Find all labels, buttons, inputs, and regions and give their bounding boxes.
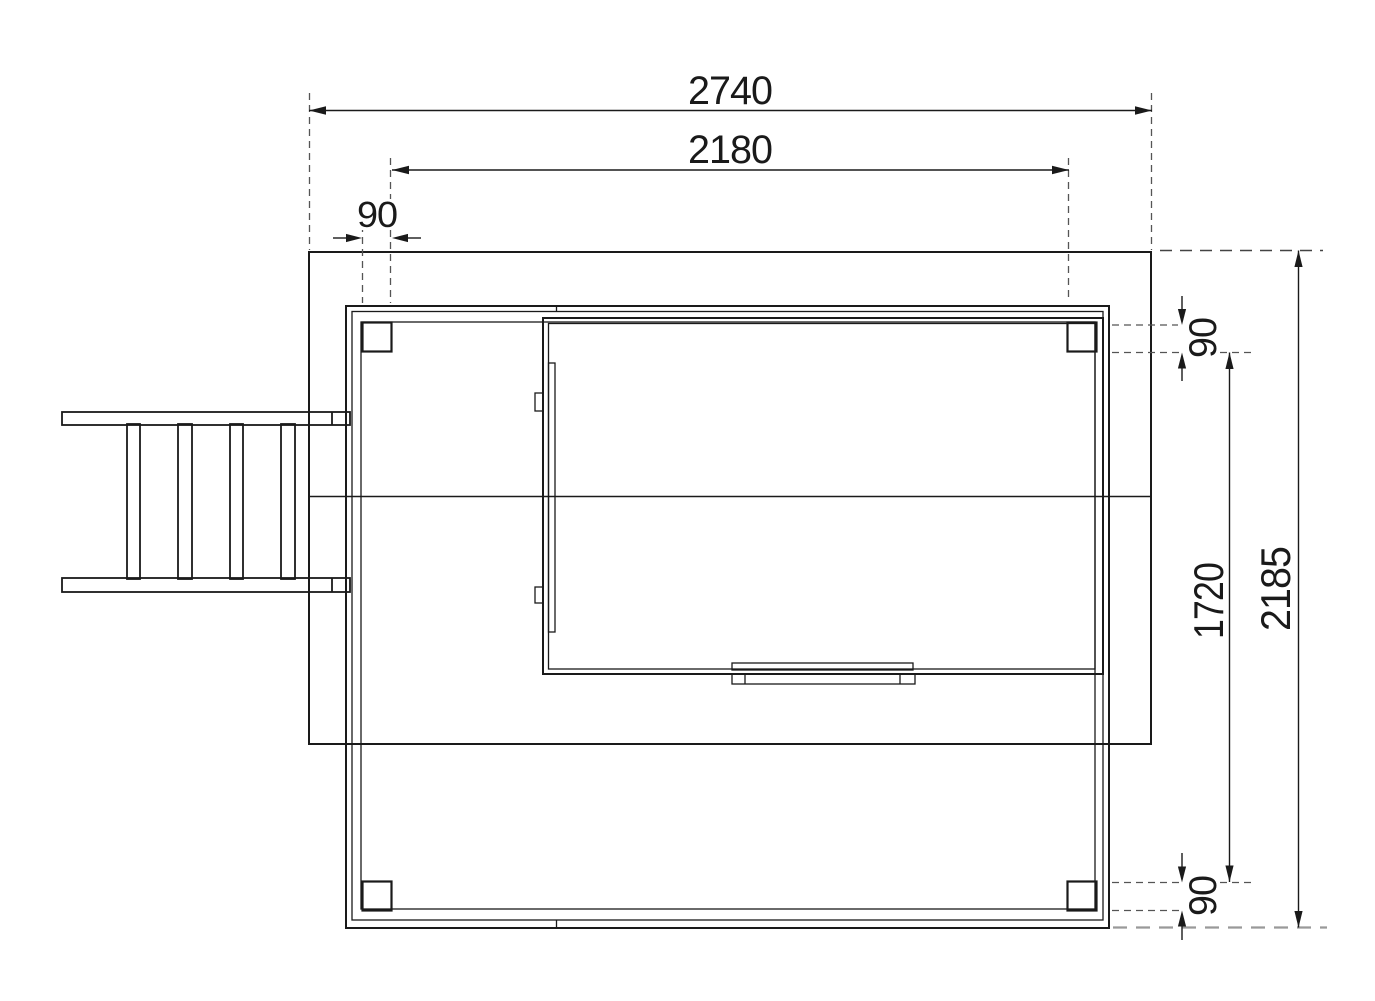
dim-label-post-depth-bottom: 90 [1182, 876, 1225, 916]
extension-lines [310, 93, 1328, 928]
corner-post-bottom-right [1068, 882, 1097, 911]
arrowhead-left-icon [309, 106, 326, 114]
ladder-rail-top [62, 412, 350, 425]
dimension-lines [309, 106, 1303, 940]
door-sill-outer [732, 674, 915, 684]
arrowhead-up-icon [1294, 251, 1302, 268]
dim-label-total-width: 2740 [688, 69, 772, 113]
dim-label-total-depth: 2185 [1252, 547, 1299, 631]
floor-plan-drawing: 2740 2180 90 90 1720 2185 90 [0, 0, 1375, 1001]
corner-post-top-left [363, 323, 392, 352]
arrowhead-left-icon [392, 166, 409, 174]
wall-inner-face [361, 322, 1095, 909]
corner-posts [363, 323, 1097, 911]
dim-label-post-width: 90 [357, 194, 397, 235]
corner-post-bottom-left [363, 882, 392, 911]
arrowhead-right-icon [1052, 166, 1069, 174]
outer-wall [346, 306, 1109, 928]
platform-outline [309, 252, 1151, 744]
ladder-rung-1 [127, 424, 140, 579]
room-left-wall-panel [549, 363, 556, 632]
panel-hinge-bottom [535, 587, 543, 603]
wall-cladding-line [352, 312, 1103, 921]
panel-hinge-top [535, 393, 543, 411]
platform [309, 252, 1151, 744]
wall-outer-face [346, 306, 1109, 928]
ladder-rung-4 [281, 424, 295, 579]
arrowhead-right-icon [1135, 106, 1152, 114]
arrowhead-left-icon [392, 234, 408, 242]
dim-label-frame-depth: 1720 [1185, 563, 1232, 639]
ladder-rung-3 [230, 424, 243, 579]
ladder-rail-bottom [62, 578, 350, 592]
ladder [62, 412, 350, 592]
arrowhead-down-icon [1294, 911, 1302, 928]
floor-plan-canvas: 2740 2180 90 90 1720 2185 90 [0, 0, 1375, 1001]
dim-label-post-depth-top: 90 [1182, 318, 1225, 358]
arrowhead-right-icon [346, 234, 362, 242]
ladder-rung-2 [178, 424, 192, 579]
inner-room [535, 318, 1103, 684]
door-sill [732, 663, 915, 684]
arrowhead-up-icon [1225, 353, 1233, 370]
arrowhead-down-icon [1225, 866, 1233, 883]
dim-label-frame-width: 2180 [688, 128, 772, 172]
dimension-labels: 2740 2180 90 90 1720 2185 90 [357, 69, 1299, 916]
corner-post-top-right [1068, 323, 1097, 352]
